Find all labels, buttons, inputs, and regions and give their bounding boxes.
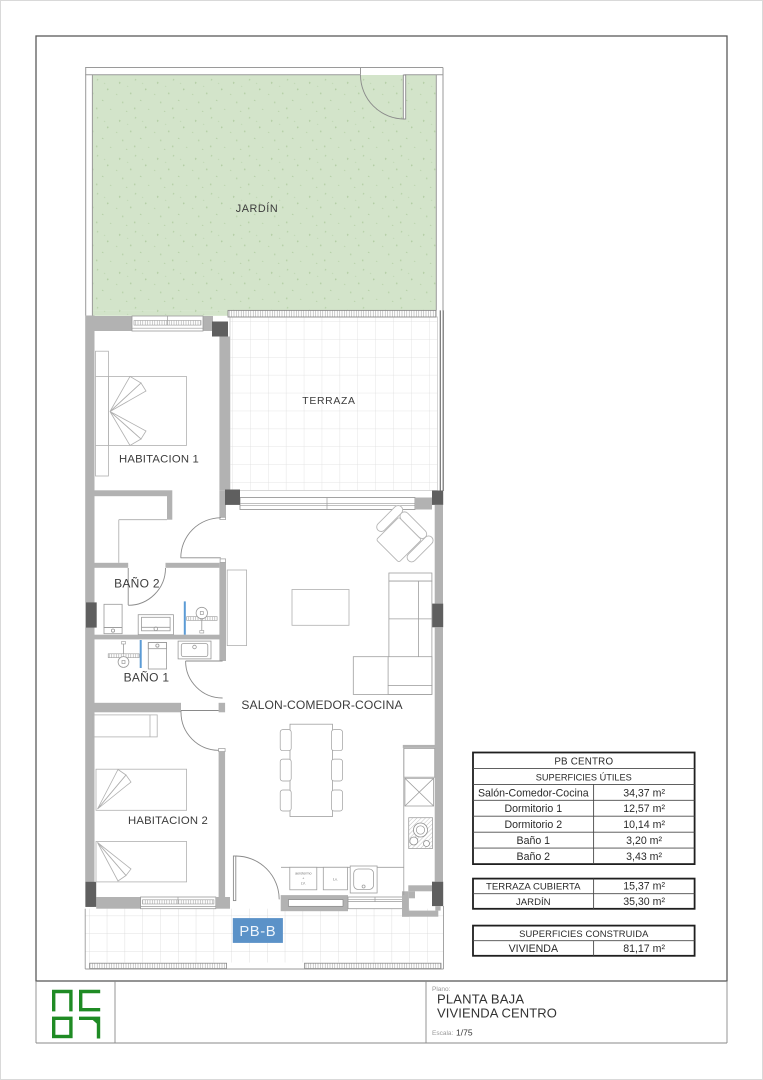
svg-text:JARDÍN: JARDÍN [516, 897, 551, 908]
svg-text:3,20 m²: 3,20 m² [626, 835, 662, 847]
svg-text:10,14 m²: 10,14 m² [623, 819, 665, 831]
svg-text:Salón-Comedor-Cocina: Salón-Comedor-Cocina [478, 787, 589, 799]
svg-text:TERRAZA CUBIERTA: TERRAZA CUBIERTA [486, 882, 581, 893]
svg-text:SALON-COMEDOR-COCINA: SALON-COMEDOR-COCINA [241, 698, 403, 712]
svg-text:SUPERFICIES ÚTILES: SUPERFICIES ÚTILES [536, 772, 632, 782]
svg-text:HABITACION 1: HABITACION 1 [119, 454, 199, 466]
svg-text:aerotermo: aerotermo [295, 872, 311, 876]
svg-text:BAÑO 2: BAÑO 2 [114, 577, 160, 591]
svg-text:VIVIENDA: VIVIENDA [509, 943, 559, 955]
svg-text:PB-B: PB-B [239, 924, 276, 940]
svg-text:34,37 m²: 34,37 m² [623, 787, 665, 799]
svg-text:81,17 m²: 81,17 m² [623, 943, 665, 955]
svg-text:Dormitorio 2: Dormitorio 2 [504, 819, 562, 831]
svg-text:1/75: 1/75 [456, 1028, 473, 1038]
svg-text:BAÑO 1: BAÑO 1 [124, 671, 170, 685]
svg-text:PLANTA BAJA: PLANTA BAJA [437, 992, 524, 1007]
svg-text:Baño 1: Baño 1 [517, 835, 551, 847]
svg-text:12,57 m²: 12,57 m² [623, 803, 665, 815]
svg-text:35,30 m²: 35,30 m² [623, 896, 665, 908]
svg-text:LV.: LV. [301, 882, 306, 886]
svg-text:SUPERFICIES CONSTRUIDA: SUPERFICIES CONSTRUIDA [519, 928, 649, 939]
svg-text:JARDÍN: JARDÍN [236, 202, 279, 215]
svg-text:PB CENTRO: PB CENTRO [554, 756, 613, 767]
svg-text:Baño 2: Baño 2 [517, 851, 551, 863]
svg-text:VIVIENDA CENTRO: VIVIENDA CENTRO [437, 1006, 557, 1021]
svg-text:Lv.: Lv. [333, 878, 338, 882]
svg-text:TERRAZA: TERRAZA [302, 396, 355, 407]
svg-text:3,43 m²: 3,43 m² [626, 851, 662, 863]
svg-text:Dormitorio 1: Dormitorio 1 [504, 803, 562, 815]
svg-text:HABITACION 2: HABITACION 2 [128, 815, 208, 827]
svg-text:Escala:: Escala: [432, 1030, 454, 1037]
svg-text:15,37 m²: 15,37 m² [623, 881, 665, 893]
svg-text:+: + [302, 877, 304, 881]
